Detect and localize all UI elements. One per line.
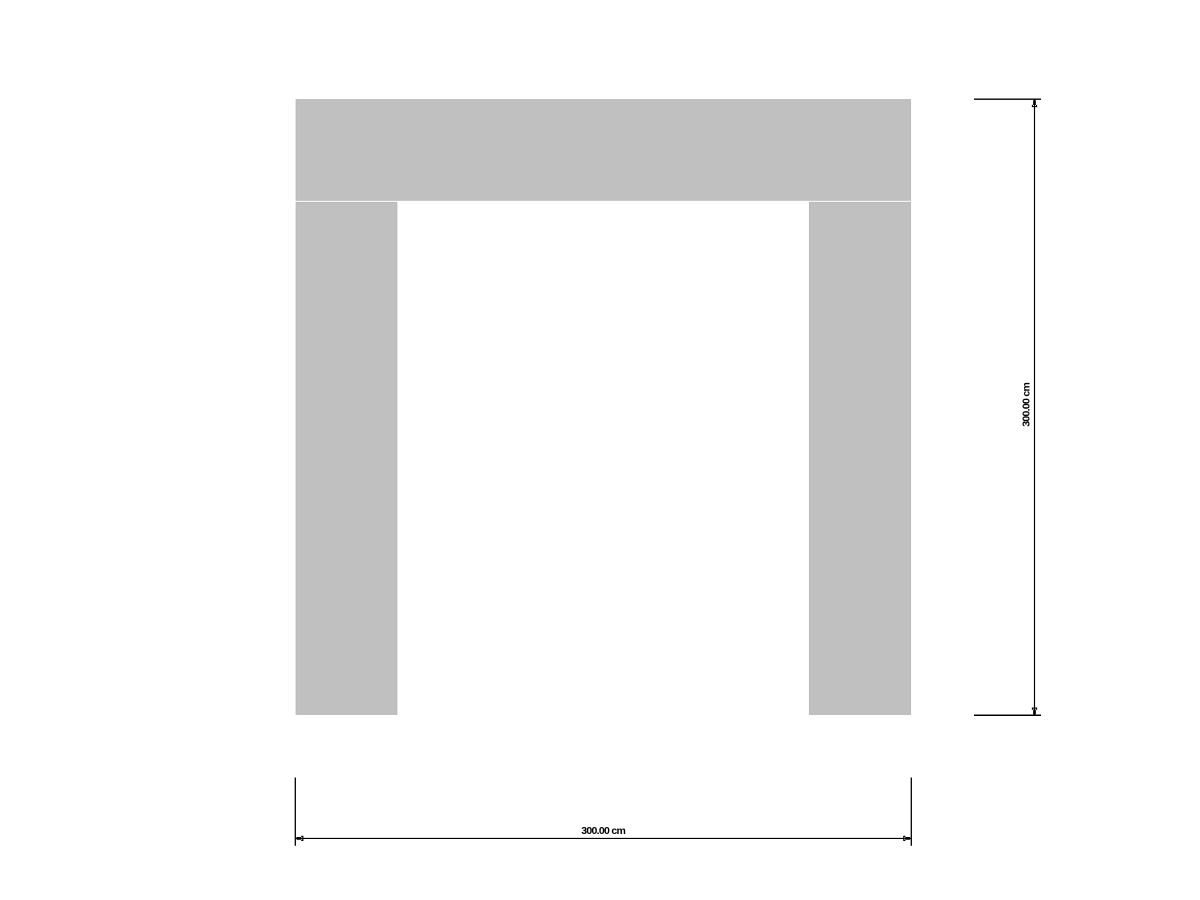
- svg-text:300.00 cm: 300.00 cm: [1021, 382, 1033, 426]
- svg-text:300.00 cm: 300.00 cm: [581, 825, 625, 837]
